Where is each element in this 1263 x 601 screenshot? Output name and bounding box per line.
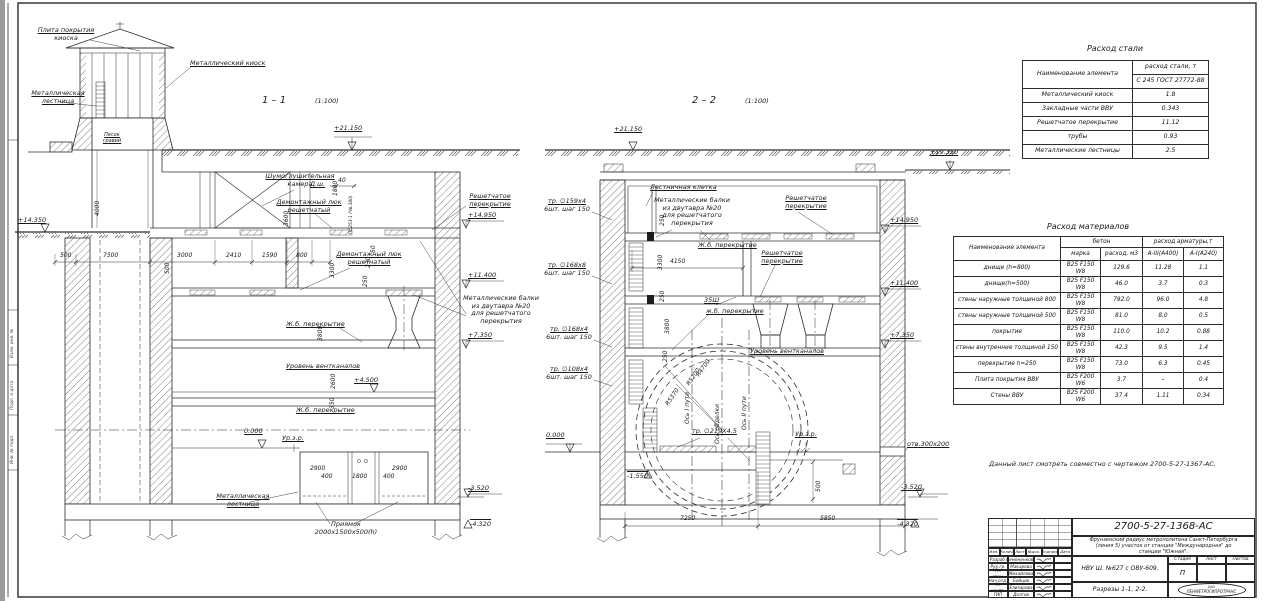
dim-4000: 4000 — [94, 201, 101, 216]
mat-cell: 8,0 — [1143, 309, 1184, 325]
tb-logo-cell: ОАО ЛЕНМЕТРОГИПРОТРАНС — [1168, 582, 1255, 598]
mat-cell: 792.0 — [1101, 293, 1143, 309]
mat-cell: 73.0 — [1101, 357, 1143, 373]
mat-cell: В25 F150 W8 — [1061, 325, 1101, 341]
mat-cell: 4.8 — [1184, 293, 1224, 309]
tb-role-4: Н. контр. — [988, 584, 1008, 591]
elevation2-21150: +21.150 — [614, 126, 642, 134]
elevation2-7350: +7.350 — [890, 332, 914, 340]
dim-2600: 2600 — [330, 374, 337, 389]
elevation2-0000: 0.000 — [546, 432, 565, 440]
elevation2-m1550: -1.550 — [627, 473, 648, 481]
dim-1590: 1590 — [262, 252, 277, 259]
mat-cell: – — [1143, 373, 1184, 389]
label-urzr: Ур.з.р. — [282, 435, 304, 443]
elevation2-m4320: -4.320 — [897, 521, 918, 529]
tb-name-5: Долгов — [1008, 591, 1034, 598]
mat-cell: днище (h=800) — [954, 261, 1061, 277]
tb-name-3: Бойцов — [1008, 577, 1034, 584]
tb-name-0: Семененкова — [1008, 556, 1034, 563]
mat-header-vol: расход, м3 — [1101, 248, 1143, 261]
mat-header-mark: марка — [1061, 248, 1101, 261]
dim2-3300: 3300 — [657, 255, 664, 270]
label-axis-track2: Ось II пути — [741, 396, 748, 430]
label2-vent-level: Уровень вентканалов — [750, 348, 824, 356]
label-ps253: ПС253-1 (Чв.380) — [349, 196, 354, 234]
label-rc-slab-1: Ж.б. перекрытие — [286, 321, 345, 329]
steel-cell: 2.5 — [1133, 145, 1209, 159]
tb-sheet-name: Разрезы 1-1, 2-2. — [1072, 582, 1168, 598]
label-metal-ladder-bottom: Металлическая лестница — [212, 493, 274, 508]
dim-3300: 3300 — [329, 263, 336, 278]
steel-cell: 11.12 — [1133, 117, 1209, 131]
label-pipe3-l2: 6шт. шаг 150 — [542, 334, 596, 342]
section-1-title: 1 – 1 — [262, 95, 286, 107]
dim-2410: 2410 — [226, 252, 241, 259]
elevation-11400: +11.400 — [468, 272, 496, 280]
materials-table: Наименование элементабетонрасход арматур… — [953, 236, 1224, 405]
dim-pit-2900b: 2900 — [392, 465, 407, 472]
dim-pit-400b: 400 — [383, 473, 394, 480]
steel-cell: 1.8 — [1133, 89, 1209, 103]
frame-label-podp: Подп. и дата — [10, 381, 15, 410]
outer-wall-right — [435, 172, 460, 504]
frame-label-inv: Инв. № подл. — [10, 434, 15, 464]
tb-date-3 — [1054, 577, 1072, 584]
label-opening-300x200: отв.300х200 — [907, 441, 949, 449]
mat-header-a3: А-III(А400) — [1143, 248, 1184, 261]
mat-header-name: Наименование элемента — [954, 237, 1061, 261]
steel-table-title: Расход стали — [1022, 44, 1208, 53]
dim-230: 230 — [365, 257, 372, 268]
mat-header-concrete: бетон — [1061, 237, 1143, 248]
elevation-14950: +14.950 — [468, 212, 496, 220]
tb-list-header: Лист — [1197, 556, 1226, 564]
dim-4150: 4150 — [670, 258, 685, 265]
label-pipe-219: тр. ∅219Х4.5 — [692, 428, 737, 436]
label2-grateA-l2: перекрытие — [776, 203, 836, 211]
dim-pit-400a: 400 — [321, 473, 332, 480]
mat-cell: перекрытие h=250 — [954, 357, 1061, 373]
dim-50: 50 — [370, 245, 377, 253]
steel-header-val1: расход стали, т — [1133, 61, 1209, 75]
tb-date-5 — [1054, 591, 1072, 598]
label-grate-deck: Решетчатое перекрытие — [460, 193, 520, 208]
elevation-m3520: -3.520 — [468, 485, 489, 493]
label-pit: Приямок 2000х1500х500(h) — [306, 521, 386, 536]
mat-cell: 3.7 — [1143, 277, 1184, 293]
dim-pit-1800: 1800 — [352, 473, 367, 480]
label-removable-hatch-1: Демонтажный люк решетчатый — [268, 199, 350, 214]
mat-cell: 11.28 — [1143, 261, 1184, 277]
elevation-m4320: -4.320 — [470, 521, 491, 529]
label-kiosk-plate: Плита покрытия киоска — [24, 27, 108, 42]
dim-3800: 3800 — [317, 326, 324, 341]
mat-header-rebar: расход арматуры,т — [1143, 237, 1224, 248]
tb-col-ndoc: №док. — [1026, 548, 1042, 556]
mat-cell: Стены ВВУ — [954, 389, 1061, 405]
label-vent-level: Уровень вентканалов — [286, 363, 360, 371]
label-pipe4-l2: 6шт. шаг 150 — [542, 374, 596, 382]
mat-cell: В25 F150 W8 — [1061, 293, 1101, 309]
label-pipe2-l2: 6шт. шаг 150 — [540, 270, 594, 278]
steel-cell: трубы — [1023, 131, 1133, 145]
label-axis-track1: Ось I пути — [684, 392, 691, 424]
mat-cell: стены внутренние толщиной 150 — [954, 341, 1061, 357]
elevation-14350: +14.350 — [18, 217, 46, 225]
label2-grate-deck-b: Решетчатое перекрытие — [752, 250, 812, 265]
note-text: Данный лист смотреть совместно с чертежо… — [945, 461, 1260, 469]
mat-cell: 0.4 — [1184, 373, 1224, 389]
dim-350: 350 — [329, 398, 336, 409]
tb-col-data: Дата — [1058, 548, 1072, 556]
tb-col-izm: Изм. — [988, 548, 1000, 556]
elevation-7350: +7.350 — [468, 332, 492, 340]
tb-stage-header: Стадия — [1168, 556, 1197, 564]
materials-table-title: Расход материалов — [953, 222, 1223, 231]
mat-cell: 3.7 — [1101, 373, 1143, 389]
mat-cell: 110.0 — [1101, 325, 1143, 341]
mat-cell: В25 F150 W8 — [1061, 261, 1101, 277]
mat-cell: стены наружные толщиной 800 — [954, 293, 1061, 309]
steel-table: Наименование элементарасход стали, т С 2… — [1022, 60, 1209, 159]
tb-name-4: Елизарова — [1008, 584, 1034, 591]
label-dsh: Д.ш. — [310, 181, 325, 189]
steel-cell: Решетчатое перекрытие — [1023, 117, 1133, 131]
mat-cell: 1.4 — [1184, 341, 1224, 357]
mat-cell: 42.3 — [1101, 341, 1143, 357]
dim-7250: 7250 — [680, 515, 695, 522]
outer-wall-left — [600, 180, 625, 505]
dim2-500: 500 — [815, 481, 822, 492]
dim-7500: 7500 — [103, 252, 118, 259]
elevation-4500: +4.500 — [354, 377, 378, 385]
label-sand-l2: гравий — [94, 139, 130, 145]
mat-cell: стены наружные толщиной 500 — [954, 309, 1061, 325]
mat-cell: днище(h=500) — [954, 277, 1061, 293]
tb-date-4 — [1054, 584, 1072, 591]
label-metal-beams: Металлические балки из двутавра №20 для … — [460, 295, 542, 326]
label-ladb-l2: лестница — [212, 501, 274, 509]
label-metal-ladder-top: Металлическая лестница — [26, 90, 90, 105]
mat-cell: 0.5 — [1184, 309, 1224, 325]
dim-500b: 500 — [164, 263, 171, 274]
dim-800: 800 — [296, 252, 307, 259]
label-pipe-1: тр. ∅159х4 6шт. шаг 150 — [540, 198, 594, 213]
label-beam-35sh: 35Ш — [704, 297, 719, 305]
mat-cell: покрытие — [954, 325, 1061, 341]
tb-name-2: Михайлова — [1008, 570, 1034, 577]
label-pipe-4: тр. ∅108х4 6шт. шаг 150 — [542, 366, 596, 381]
tb-role-0: Разраб. — [988, 556, 1008, 563]
mat-cell: 1.1 — [1184, 261, 1224, 277]
label-kiosk-plate-l2: киоска — [24, 35, 108, 43]
label2-urzr: Ур.з.р. — [795, 431, 817, 439]
section-1-scale: (1:100) — [315, 98, 339, 106]
bottom-slab — [600, 505, 905, 519]
dim-pit-2900a: 2900 — [310, 465, 325, 472]
tb-col-list: Лист — [1014, 548, 1026, 556]
label-hatch1-l2: решетчатый — [268, 207, 350, 215]
tb-col-kol: Колич. — [1000, 548, 1014, 556]
section-2-title: 2 – 2 — [692, 95, 716, 107]
mat-cell: В25 F200 W6 — [1061, 373, 1101, 389]
label-grate-l2: перекрытие — [460, 201, 520, 209]
signature-scribbles — [1034, 556, 1054, 598]
mat-cell: В25 F150 W8 — [1061, 341, 1101, 357]
mat-cell: 6.3 — [1143, 357, 1184, 373]
label2-rc-slab-b: ж.б. перекрытие — [706, 308, 764, 316]
tb-name-1: Макарова — [1008, 563, 1034, 570]
dim2-250c: 250 — [662, 351, 669, 362]
label2-rc-slab: Ж.б. перекрытие — [698, 242, 757, 250]
mat-cell: 37.4 — [1101, 389, 1143, 405]
dim-1800: 1800 — [332, 181, 339, 196]
elevation2-m3520: -3.520 — [901, 484, 922, 492]
dim2-250a: 250 — [659, 215, 666, 226]
tb-object: НВУ Ш. №627 с ОВУ-609. — [1072, 556, 1168, 582]
dim-3600: 3600 — [283, 211, 290, 226]
mat-cell: В25 F150 W8 — [1061, 309, 1101, 325]
label-rc-slab-2: Ж.б. перекрытие — [296, 407, 355, 415]
label2-grate-deck-a: Решетчатое перекрытие — [776, 195, 836, 210]
steel-cell: Закладные части ВВУ — [1023, 103, 1133, 117]
label-pit-l2: 2000х1500х500(h) — [306, 529, 386, 537]
dim2-3800: 3800 — [664, 319, 671, 334]
mat-cell: 81.0 — [1101, 309, 1143, 325]
tb-list-value — [1197, 564, 1226, 582]
scan-edge-shadow — [0, 0, 5, 601]
mat-cell: В25 F200 W6 — [1061, 389, 1101, 405]
mat-cell: В25 F150 W8 — [1061, 277, 1101, 293]
tb-desc-l3: станции "Южная". — [1139, 549, 1188, 555]
tb-drawing-number: 2700-5-27-1368-АС — [1072, 518, 1255, 536]
tb-revision-grid — [988, 518, 1072, 548]
label-pipe-2: тр. ∅168х8 6шт. шаг 150 — [540, 262, 594, 277]
tb-role-2: Гл. спец. — [988, 570, 1008, 577]
elevation2-14950: +14.950 — [890, 217, 918, 225]
dim-250: 250 — [362, 276, 369, 287]
label-metal-kiosk: Металлический киоск — [190, 60, 265, 68]
mat-cell: 9.5 — [1143, 341, 1184, 357]
label-sand-gravel: Песок гравий — [94, 133, 130, 145]
label-axis-lining: Ось обделки — [714, 404, 721, 444]
label-beams-l4: перекрытия — [460, 318, 542, 326]
dim2-250b: 250 — [659, 291, 666, 302]
tb-col-podpis: Подпись — [1042, 548, 1058, 556]
section-2-scale: (1:100) — [745, 98, 769, 106]
elevation-0000: 0.000 — [244, 428, 263, 436]
mat-cell: Плита покрытия ВВУ — [954, 373, 1061, 389]
elevation2-11400: +11.400 — [890, 280, 918, 288]
mat-cell: 1.11 — [1143, 389, 1184, 405]
mat-cell: 0.3 — [1184, 277, 1224, 293]
label-stairwell: Лестничная клетка — [650, 184, 717, 192]
dim-40: 40 — [338, 177, 346, 184]
frame-label-vzam: Взам. инв. № — [10, 329, 15, 358]
mat-cell: 0.88 — [1184, 325, 1224, 341]
mat-cell: 10.2 — [1143, 325, 1184, 341]
mat-cell: 129.6 — [1101, 261, 1143, 277]
dim-5850: 5850 — [820, 515, 835, 522]
label-pipe-3: тр. ∅168х4 6шт. шаг 150 — [542, 326, 596, 341]
tb-org-line2: ЛЕНМЕТРОГИПРОТРАНС — [1187, 590, 1237, 594]
tb-project-description: Фрунзенский радиус метрополитена Санкт-П… — [1072, 536, 1255, 556]
elevation-21150: +21.150 — [334, 125, 362, 133]
mat-cell: В25 F150 W8 — [1061, 357, 1101, 373]
label2-grateB-l2: перекрытие — [752, 258, 812, 266]
label-ladder-l2: лестница — [26, 98, 90, 106]
steel-header-name: Наименование элемента — [1023, 61, 1133, 89]
tb-stage-value: П — [1168, 564, 1197, 582]
tb-date-2 — [1054, 570, 1072, 577]
dim-500a: 500 — [60, 252, 71, 259]
mat-cell: 0.45 — [1184, 357, 1224, 373]
label-pipe1-l2: 6шт. шаг 150 — [540, 206, 594, 214]
mat-cell: 46.0 — [1101, 277, 1143, 293]
steel-cell: Металлические лестницы — [1023, 145, 1133, 159]
mat-cell: 96.0 — [1143, 293, 1184, 309]
tb-date-0 — [1054, 556, 1072, 563]
mat-header-a1: А-I(А240) — [1184, 248, 1224, 261]
tb-role-5: ГИП — [988, 591, 1008, 598]
mat-cell: 0.34 — [1184, 389, 1224, 405]
steel-cell: Металлический киоск — [1023, 89, 1133, 103]
steel-cell: 0.343 — [1133, 103, 1209, 117]
tb-date-1 — [1054, 563, 1072, 570]
elevation2-19350: +19.350 — [930, 149, 958, 157]
steel-cell: 0.93 — [1133, 131, 1209, 145]
tb-listov-header: Листов — [1226, 556, 1255, 564]
tb-listov-value — [1226, 564, 1255, 582]
dim-3000: 3000 — [177, 252, 192, 259]
outer-wall-left — [65, 238, 90, 504]
company-logo: ОАО ЛЕНМЕТРОГИПРОТРАНС — [1178, 583, 1246, 597]
steel-header-val2: С 245 ГОСТ 27772-88 — [1133, 75, 1209, 89]
